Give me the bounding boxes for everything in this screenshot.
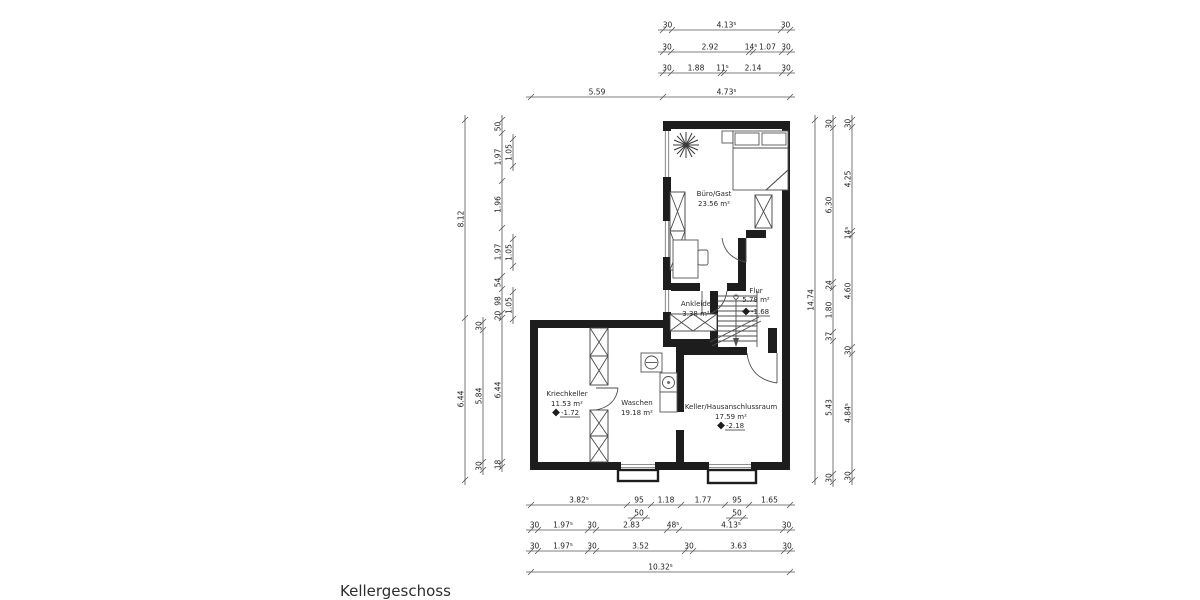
- dim-chain-top-2: 302.9214⁵1.0730: [658, 43, 795, 56]
- dim-label: 30: [587, 521, 597, 530]
- room-name-buero: Büro/Gast: [697, 190, 732, 198]
- dim-label: 54: [494, 278, 503, 288]
- wall-keller-north: [676, 347, 747, 355]
- window-opening-bottom-1: [621, 462, 655, 470]
- dim-label: 30: [781, 64, 791, 73]
- wall-buero-south-a: [663, 283, 700, 291]
- dim-label: 1.88: [688, 64, 705, 73]
- wall-ankleide-south: [663, 339, 718, 347]
- room-area-flur: 5.78 m²: [742, 296, 770, 304]
- dim-label: 4.73⁵: [717, 88, 737, 97]
- dim-label: 1.05: [505, 144, 514, 161]
- dim-label: 1.96: [494, 196, 503, 213]
- room-area-kriechkeller: 11.53 m²: [551, 400, 583, 408]
- light-well-2: [708, 470, 756, 483]
- wardrobe-right: [755, 195, 772, 228]
- plant-icon: [673, 132, 699, 158]
- dim-chain-top-1: 304.13⁵30: [658, 21, 795, 34]
- dim-label: 48⁵: [667, 521, 680, 530]
- dim-label: 5.84: [475, 387, 484, 404]
- dim-chain-left-3c: 1.05: [505, 234, 517, 271]
- dim-label: 30: [587, 542, 597, 551]
- dim-chain-left-2: 305.8430: [475, 317, 487, 475]
- room-area-buero: 23.56 m²: [698, 200, 730, 208]
- dim-label: 6.30: [825, 196, 834, 213]
- dim-label: 14⁵: [844, 227, 853, 240]
- dim-label: 3.82⁵: [569, 496, 589, 505]
- dim-label: 30: [475, 461, 484, 471]
- room-area-waschen: 19.18 m²: [621, 409, 653, 417]
- dim-label: 1.97⁵: [553, 521, 573, 530]
- window-opening-1: [663, 131, 671, 177]
- room-name-flur: Flur: [749, 287, 762, 295]
- dim-chain-left-3b: 1.05: [505, 134, 517, 171]
- dim-label: 8.12: [457, 210, 466, 227]
- wall-waschen-keller-b: [676, 430, 684, 462]
- dim-chain-bot-1: 3.82⁵951.181.77951.65: [526, 496, 795, 509]
- dim-label: 4.13⁵: [717, 21, 737, 30]
- wall-lower-block-north: [530, 320, 671, 328]
- dim-label: 95: [634, 496, 644, 505]
- dim-label: 4.13⁵: [721, 521, 741, 530]
- dim-label: 14.74: [807, 289, 816, 311]
- wall-top-upper-wing: [663, 121, 790, 129]
- dim-label: 30: [530, 542, 540, 551]
- bed: [722, 131, 788, 190]
- level-marker-kriechkeller: [553, 409, 560, 416]
- dim-label: 37: [825, 332, 834, 342]
- washing-machine-1: [641, 353, 662, 372]
- desk: [673, 240, 708, 278]
- dim-chain-left-3d: 1.05: [505, 287, 517, 324]
- kriechkeller-partition: [590, 328, 608, 462]
- level-marker-flur: [743, 308, 750, 315]
- dim-label: 30: [844, 119, 853, 129]
- dim-label: 30: [662, 43, 672, 52]
- room-level-keller: -2.18: [726, 422, 744, 430]
- dim-label: 30: [844, 471, 853, 481]
- dim-label: 4.60: [844, 282, 853, 299]
- dim-label: 5.43: [825, 399, 834, 416]
- stair-walkline-arrow: [733, 338, 739, 347]
- floor-plan-drawing: Büro/Gast 23.56 m² Ankleide 3.38 m² Flur…: [0, 0, 1200, 600]
- cabinet: [660, 392, 677, 412]
- dim-label: 1.77: [695, 496, 712, 505]
- dim-label: 10.32⁵: [648, 563, 672, 572]
- dim-label: 1.80: [825, 301, 834, 318]
- level-marker-keller: [718, 422, 725, 429]
- room-name-keller: Keller/Hausanschlussraum: [685, 403, 778, 411]
- dim-label: 6.44: [457, 390, 466, 407]
- dim-label: 30: [844, 346, 853, 356]
- dim-label: 1.97: [494, 148, 503, 165]
- dim-label: 3.52: [632, 542, 649, 551]
- dim-label: 4.84⁵: [844, 403, 853, 423]
- dim-label: 1.05: [505, 297, 514, 314]
- dim-label: 18: [494, 460, 503, 470]
- wall-keller-door-stub: [768, 328, 777, 353]
- dim-label: 1.07: [759, 43, 776, 52]
- dim-chain-bot-1c: 50: [726, 509, 748, 522]
- wall-flur-north-stub: [746, 230, 766, 238]
- door-arc-kriechkeller: [596, 388, 618, 410]
- dim-chain-top-4: 5.594.73⁵: [526, 88, 795, 101]
- dim-label: 30: [781, 43, 791, 52]
- dim-chain-bot-1b: 50: [628, 509, 650, 522]
- dim-chain-left-1: 8.126.44: [457, 115, 469, 485]
- dimension-layer: 304.13⁵30302.9214⁵1.0730301.8811⁵2.14305…: [457, 21, 856, 576]
- dim-label: 30: [662, 64, 672, 73]
- stair-walkline-start: [734, 295, 738, 299]
- dim-label: 30: [684, 542, 694, 551]
- dim-chain-bot-4: 10.32⁵: [526, 563, 795, 576]
- room-level-flur: -1.68: [751, 308, 769, 316]
- dim-chain-right-3: 304.2514⁵4.60304.84⁵30: [844, 115, 856, 485]
- dim-label: 1.65: [761, 496, 778, 505]
- dim-label: 2.83: [623, 521, 640, 530]
- room-name-kriechkeller: Kriechkeller: [546, 390, 587, 398]
- wall-flur-west: [738, 238, 746, 291]
- room-level-kriechkeller: -1.72: [561, 409, 579, 417]
- dim-chain-bot-2: 301.97⁵302.8348⁵4.13⁵30: [526, 521, 795, 534]
- floor-plan-page: Büro/Gast 23.56 m² Ankleide 3.38 m² Flur…: [0, 0, 1200, 600]
- dim-label: 30: [825, 119, 834, 129]
- dim-label: 20: [494, 311, 503, 321]
- window-opening-3: [663, 290, 671, 312]
- dim-label: 95: [732, 496, 742, 505]
- dim-label: 50: [494, 122, 503, 132]
- drawing-title: Kellergeschoss: [340, 582, 451, 600]
- dim-label: 30: [475, 321, 484, 331]
- dim-label: 2.92: [702, 43, 719, 52]
- dim-chain-bot-3: 301.97⁵303.52303.6330: [526, 542, 795, 555]
- dim-label: 1.97⁵: [553, 542, 573, 551]
- dim-label: 2.14: [745, 64, 762, 73]
- dim-chain-left-3: 501.971.961.975498206.4418: [494, 115, 506, 472]
- wall-left-lower: [530, 320, 538, 470]
- room-area-ankleide: 3.38 m²: [682, 310, 710, 318]
- room-name-ankleide: Ankleide: [681, 300, 711, 308]
- dim-label: 30: [530, 521, 540, 530]
- dim-label: 98: [494, 296, 503, 306]
- dim-label: 30: [782, 542, 792, 551]
- dim-label: 1.05: [505, 244, 514, 261]
- dim-label: 11⁵: [716, 64, 729, 73]
- dim-label: 6.44: [494, 381, 503, 398]
- dim-label: 50: [732, 509, 742, 518]
- dim-label: 3.63: [730, 542, 747, 551]
- dim-label: 24: [825, 280, 834, 290]
- dim-label: 1.18: [658, 496, 675, 505]
- dim-label: 30: [782, 521, 792, 530]
- dim-chain-right-1: 14.74: [807, 115, 819, 485]
- dim-label: 4.25: [844, 170, 853, 187]
- room-area-keller: 17.59 m²: [715, 413, 747, 421]
- dim-chain-top-3: 301.8811⁵2.1430: [658, 64, 795, 77]
- dim-label: 30: [663, 21, 673, 30]
- dim-label: 14⁵: [745, 43, 758, 52]
- window-opening-bottom-2: [709, 462, 751, 470]
- dim-chain-right-2: 306.30241.80375.4330: [825, 115, 837, 487]
- washing-machine-2: [660, 373, 677, 392]
- dim-label: 5.59: [589, 88, 606, 97]
- light-well-1: [618, 470, 658, 481]
- door-arc-keller: [747, 353, 777, 383]
- dim-label: 30: [781, 21, 791, 30]
- dim-label: 50: [634, 509, 644, 518]
- dim-label: 30: [825, 473, 834, 483]
- room-name-waschen: Waschen: [621, 399, 652, 407]
- dim-label: 1.97: [494, 243, 503, 260]
